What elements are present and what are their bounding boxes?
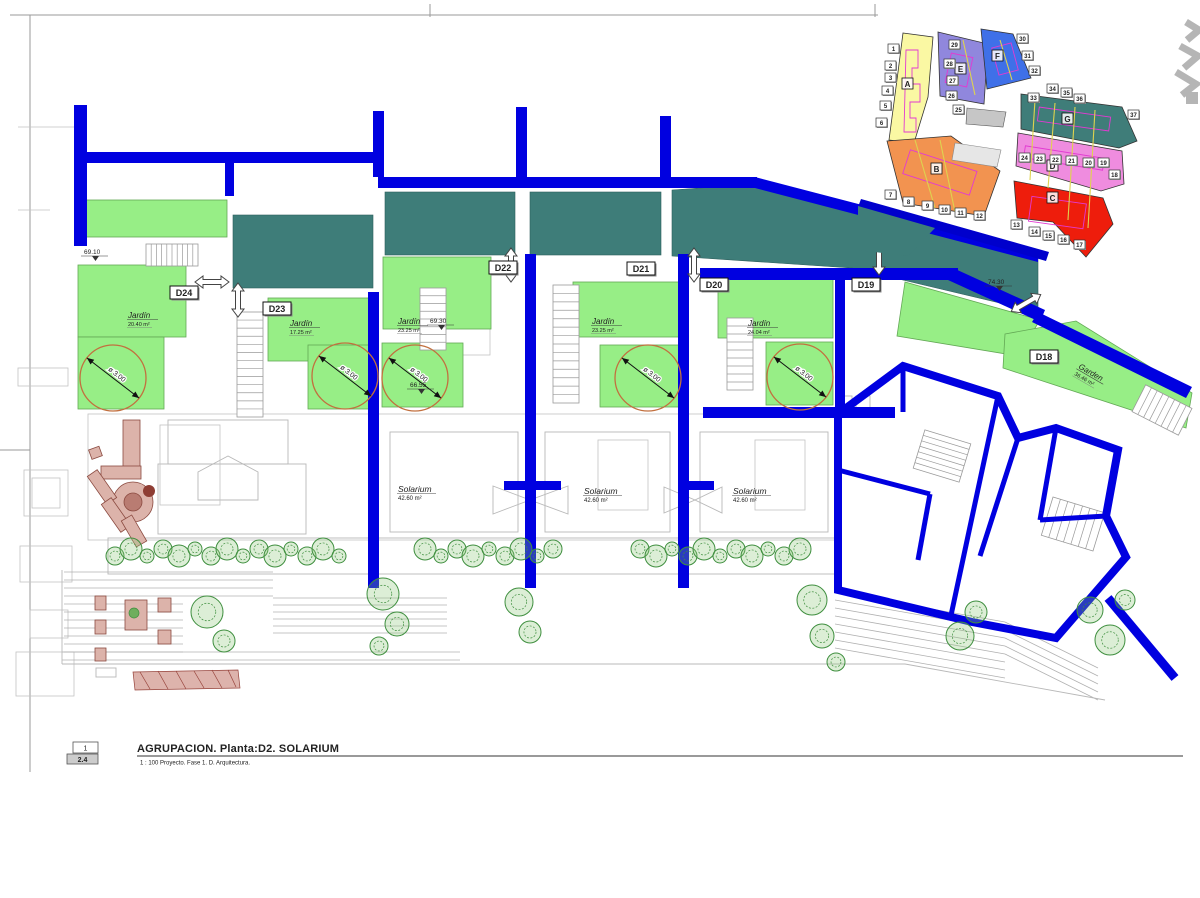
tree: [414, 538, 436, 560]
step-line: [835, 640, 1005, 670]
level-flag-icon: [92, 256, 99, 261]
tree: [645, 545, 667, 567]
tree: [236, 549, 250, 563]
tree: [482, 542, 496, 556]
tree: [797, 585, 827, 615]
lot-number-27: 27: [949, 79, 956, 85]
tree: [264, 545, 286, 567]
garden-D21: [573, 282, 680, 337]
corner-logo: [1176, 22, 1199, 104]
solarium-area: 42.60 m²: [398, 496, 422, 502]
level-value: 69.10: [84, 249, 101, 256]
vegetation: [106, 538, 1135, 671]
tree: [367, 578, 399, 610]
garden-area: 20.40 m²: [128, 322, 150, 328]
lot-number-18: 18: [1111, 173, 1118, 179]
level-value: 66.55: [410, 382, 427, 389]
garden-area: 24.04 m²: [748, 330, 770, 336]
unit-label-D19: D19: [858, 280, 875, 290]
stair-flight: [913, 430, 971, 482]
lot-number-35: 35: [1063, 91, 1070, 97]
unit-label-D21: D21: [633, 264, 650, 274]
lot-number-33: 33: [1030, 96, 1037, 102]
tree: [965, 601, 987, 623]
lot-number-29: 29: [951, 43, 958, 49]
tree: [312, 538, 334, 560]
tree: [530, 549, 544, 563]
level-value: 74.30: [988, 279, 1005, 286]
title-block: 1 2.4 AGRUPACION. Planta:D2. SOLARIUM 1 …: [67, 742, 1183, 767]
title-ref-top: 1: [84, 746, 88, 753]
lot-number-19: 19: [1100, 161, 1107, 167]
solarium-name: Solarium: [398, 484, 432, 494]
solarium-area: 42.60 m²: [584, 498, 608, 504]
tree: [761, 542, 775, 556]
double-arrow-icon: [232, 283, 244, 317]
keymap-zone-letter-C: C: [1050, 194, 1056, 203]
lot-number-11: 11: [957, 211, 964, 217]
tree: [370, 637, 388, 655]
site-keymap: ABCDEFG 12345678910111213141516171819202…: [858, 29, 1140, 261]
tree: [713, 549, 727, 563]
tree: [120, 538, 142, 560]
garden-area: 17.25 m²: [290, 330, 312, 336]
garden-name: Jardín: [747, 319, 771, 328]
lot-number-24: 24: [1021, 156, 1028, 162]
unit-label-D23: D23: [269, 304, 286, 314]
tree: [1115, 590, 1135, 610]
garden-area: 23.25 m²: [398, 328, 420, 334]
lot-number-14: 14: [1031, 230, 1038, 236]
tree: [505, 588, 533, 616]
tree: [1077, 597, 1103, 623]
lot-number-25: 25: [955, 108, 962, 114]
tree: [213, 630, 235, 652]
unit-label-D22: D22: [495, 263, 512, 273]
lot-number-32: 32: [1031, 69, 1038, 75]
terrace-edge-sloped: [905, 664, 1105, 700]
garden-name: Jardín: [127, 311, 151, 320]
stair-flight: [1041, 497, 1104, 551]
tree: [434, 549, 448, 563]
lot-number-36: 36: [1076, 97, 1083, 103]
keymap-zone-letter-B: B: [934, 165, 940, 174]
lot-number-13: 13: [1013, 223, 1020, 229]
tree: [191, 596, 223, 628]
tree: [693, 538, 715, 560]
chevron-icon: [1186, 22, 1199, 40]
lot-number-34: 34: [1049, 87, 1056, 93]
drawing-sheet: ø 3.00ø 3.00ø 3.00ø 3.00ø 3.00 D24D23D22…: [0, 0, 1200, 898]
tree: [741, 545, 763, 567]
tree: [519, 621, 541, 643]
tree: [462, 545, 484, 567]
level-value: 69.30: [430, 318, 447, 325]
unit-label-D24: D24: [176, 288, 193, 298]
sheet-subtitle: 1 : 100 Proyecto. Fase 1. D. Arquitectur…: [140, 761, 250, 767]
lot-number-23: 23: [1036, 157, 1043, 163]
garden-name: Jardín: [289, 319, 313, 328]
solarium-name: Solarium: [584, 486, 618, 496]
lot-number-28: 28: [946, 62, 953, 68]
lot-number-37: 37: [1130, 113, 1137, 119]
step-line: [835, 648, 1005, 678]
keymap-zone-letter-E: E: [958, 65, 964, 74]
step-line: [835, 624, 1005, 654]
tree: [946, 622, 974, 650]
tree: [140, 549, 154, 563]
garden-area: 23.25 m²: [592, 328, 614, 334]
lot-number-12: 12: [976, 214, 983, 220]
tree: [385, 612, 409, 636]
stair-flight: [727, 318, 753, 390]
tree: [332, 549, 346, 563]
lot-number-15: 15: [1045, 234, 1052, 240]
right-complex-outline: [838, 366, 1126, 638]
lot-number-10: 10: [941, 208, 948, 214]
keymap-zone-letter-A: A: [905, 80, 911, 89]
tree: [510, 538, 532, 560]
tree: [284, 542, 298, 556]
tree: [544, 540, 562, 558]
stair-flight: [237, 312, 263, 417]
double-arrow-icon: [688, 248, 700, 282]
stair-flight: [553, 285, 579, 403]
garden-name: Jardín: [397, 317, 421, 326]
right-complex-partitions: [838, 366, 1106, 620]
lot-number-16: 16: [1060, 238, 1067, 244]
lot-number-20: 20: [1085, 161, 1092, 167]
tree: [810, 624, 834, 648]
plan-canvas: ø 3.00ø 3.00ø 3.00ø 3.00ø 3.00 D24D23D22…: [0, 0, 1200, 898]
tree: [188, 542, 202, 556]
stair-flight: [146, 244, 198, 266]
lot-number-17: 17: [1076, 243, 1083, 249]
keymap-zone-letter-F: F: [995, 52, 1000, 61]
garden-band-left: [80, 200, 227, 237]
unit-label-D20: D20: [706, 280, 723, 290]
lot-number-26: 26: [948, 94, 955, 100]
title-ref-bottom: 2.4: [78, 757, 88, 764]
lot-number-31: 31: [1024, 54, 1031, 60]
step-line: [835, 632, 1005, 662]
garden-name: Jardín: [591, 317, 615, 326]
solarium-area: 42.60 m²: [733, 498, 757, 504]
unit-label-D18: D18: [1036, 352, 1053, 362]
chevron-icon: [1180, 46, 1198, 68]
chevron-icon: [1176, 72, 1196, 95]
solarium-name: Solarium: [733, 486, 767, 496]
double-arrow-icon: [195, 276, 229, 288]
tree: [216, 538, 238, 560]
tree: [789, 538, 811, 560]
lot-number-22: 22: [1052, 158, 1059, 164]
tree: [827, 653, 845, 671]
logo-square: [1186, 92, 1198, 104]
tree: [665, 542, 679, 556]
adjacent-sheet-ghosts: [16, 127, 76, 696]
tree: [168, 545, 190, 567]
tree: [1095, 625, 1125, 655]
sheet-title: AGRUPACION. Planta:D2. SOLARIUM: [137, 743, 339, 755]
lot-number-30: 30: [1019, 37, 1026, 43]
keymap-zone-letter-G: G: [1064, 115, 1070, 124]
lot-number-21: 21: [1068, 159, 1075, 165]
